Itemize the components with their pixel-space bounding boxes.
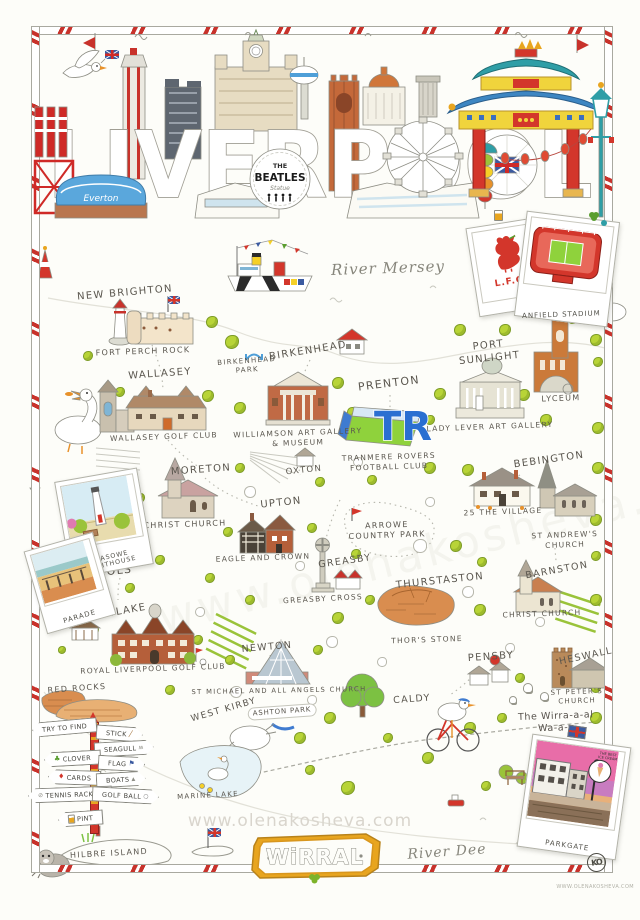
chimney-tower-icon: [416, 76, 440, 117]
parade-photo: [31, 541, 97, 604]
marine-lake-icon: [180, 746, 261, 798]
label-tranmere: TRANMERE ROVERS FOOTBALL CLUB: [342, 451, 437, 474]
everton-stadium-icon: Everton: [55, 175, 147, 218]
dazzle-ferry-icon: [228, 240, 312, 291]
village-cottage-icon: [470, 468, 534, 510]
greasby-houses-icon: [334, 570, 362, 589]
seagull-flag-icon: [63, 50, 119, 78]
stick-icon: [129, 731, 133, 738]
anfield-caption: ANFIELD STADIUM: [515, 309, 607, 320]
fort-perch-rock-icon: [127, 296, 193, 344]
label-arrowe-country-park: ARROWE COUNTRY PARK: [348, 519, 426, 542]
teal-pin-icon: [601, 220, 607, 226]
ashton-park-slide-icon: [272, 724, 294, 729]
williamson-gallery-icon: [266, 372, 330, 425]
thors-stone-icon: [378, 586, 454, 625]
pint-icon: [68, 814, 76, 823]
signpost-arrow-label: TRY TO FIND: [42, 722, 88, 734]
flag-icon: [128, 760, 135, 767]
banner-clover-icon: [309, 874, 320, 884]
beatles-sign: THE BEATLES Statue: [250, 149, 310, 209]
header-skyline: LIVERPOOL Everton THE BEATLES Statue: [35, 33, 605, 225]
polaroid-anfield: ANFIELD STADIUM: [514, 211, 620, 328]
signpost-arrow-label: STICK: [106, 729, 127, 738]
eagle-and-crown-icon: [238, 513, 295, 553]
signpost-arrow-seagull: SEAGULL: [94, 739, 154, 757]
beatles-line1: THE: [273, 162, 287, 170]
try-to-find-signpost: TRY TO FINDSTICKSEAGULLCLOVERFLAGCARDSBO…: [30, 714, 182, 836]
boats-icon: [131, 775, 136, 782]
flag-island-icon: [192, 828, 233, 856]
signpost-arrow-clover: CLOVER: [44, 750, 102, 768]
label-caldy: CALDY: [393, 693, 431, 708]
golf-icon: [143, 793, 149, 800]
signpost-arrow-stick: STICK: [96, 724, 144, 742]
signpost-arrow-label: GOLF BALL: [102, 790, 142, 800]
bench-icon: [499, 765, 528, 785]
clover-pin-icon: [588, 208, 600, 227]
pennant-flag-right: [577, 35, 589, 53]
poster-page: www.olenakosheva.com: [0, 0, 640, 920]
dove-icons: [135, 33, 527, 40]
anfield-stadium-icon: [524, 217, 607, 290]
pennant-flag-left: [83, 33, 95, 51]
beer-pin-icon: [494, 210, 503, 221]
goose-icon-left: [55, 389, 101, 454]
polaroid-parkgate: THE BEST ICE CREAM PARKGATE: [517, 734, 632, 861]
signpost-arrow-label: PINT: [77, 814, 94, 823]
cards-icon: [58, 773, 65, 780]
beatles-line3: Statue: [270, 185, 290, 192]
st-andrews-church-icon: [538, 460, 597, 516]
everton-stadium-label: Everton: [84, 194, 119, 204]
signpost-arrow-label: FLAG: [108, 759, 127, 768]
signpost-arrow-cards: CARDS: [48, 769, 102, 786]
parkgate-flag-icon: [567, 725, 586, 739]
seagull-icon: [138, 744, 144, 751]
label-st-andrews-church: ST ANDREW'S CHURCH: [527, 529, 603, 551]
signpost-arrow-label: CARDS: [67, 773, 92, 782]
racket-icon: [38, 792, 44, 799]
big-tree-icon: [341, 674, 384, 717]
svg-text:TR: TR: [374, 404, 432, 450]
clover-icon: [54, 756, 61, 763]
signpost-arrow-boats: BOATS: [96, 771, 146, 789]
signpost-arrow-flag: FLAG: [98, 755, 146, 772]
beatles-line2: BEATLES: [254, 172, 305, 184]
signpost-arrow-golf-ball: GOLF BALL: [92, 786, 160, 804]
wirral-banner-text: WiRRAL: [266, 845, 364, 869]
label-lyceum: LYCEUM: [541, 393, 580, 405]
signpost-arrow-label: CLOVER: [62, 754, 91, 763]
wallasey-golf-club-icon: [126, 386, 206, 430]
label-st-peters-church: ST PETER'S CHURCH: [545, 687, 609, 707]
wirral-banner: WiRRAL: [248, 830, 388, 884]
leasowe-lighthouse-photo: [61, 475, 136, 546]
oxton-house-icon: [295, 448, 315, 466]
signpost-arrow-try-to-find: TRY TO FIND: [31, 717, 97, 738]
signpost-arrow-label: BOATS: [106, 775, 130, 784]
footer-url: WWW.OLENAKOSHEVA.COM: [556, 884, 634, 890]
arrowe-flag-icon: [352, 508, 362, 521]
signpost-arrow-pint: PINT: [58, 809, 104, 827]
seagull-bike-icon: [427, 698, 479, 751]
signpost-arrow-label: SEAGULL: [104, 744, 137, 754]
ferris-wheel-icon: [383, 117, 463, 197]
tugboat-icon: [448, 795, 464, 806]
buoy-icon: [38, 246, 52, 278]
